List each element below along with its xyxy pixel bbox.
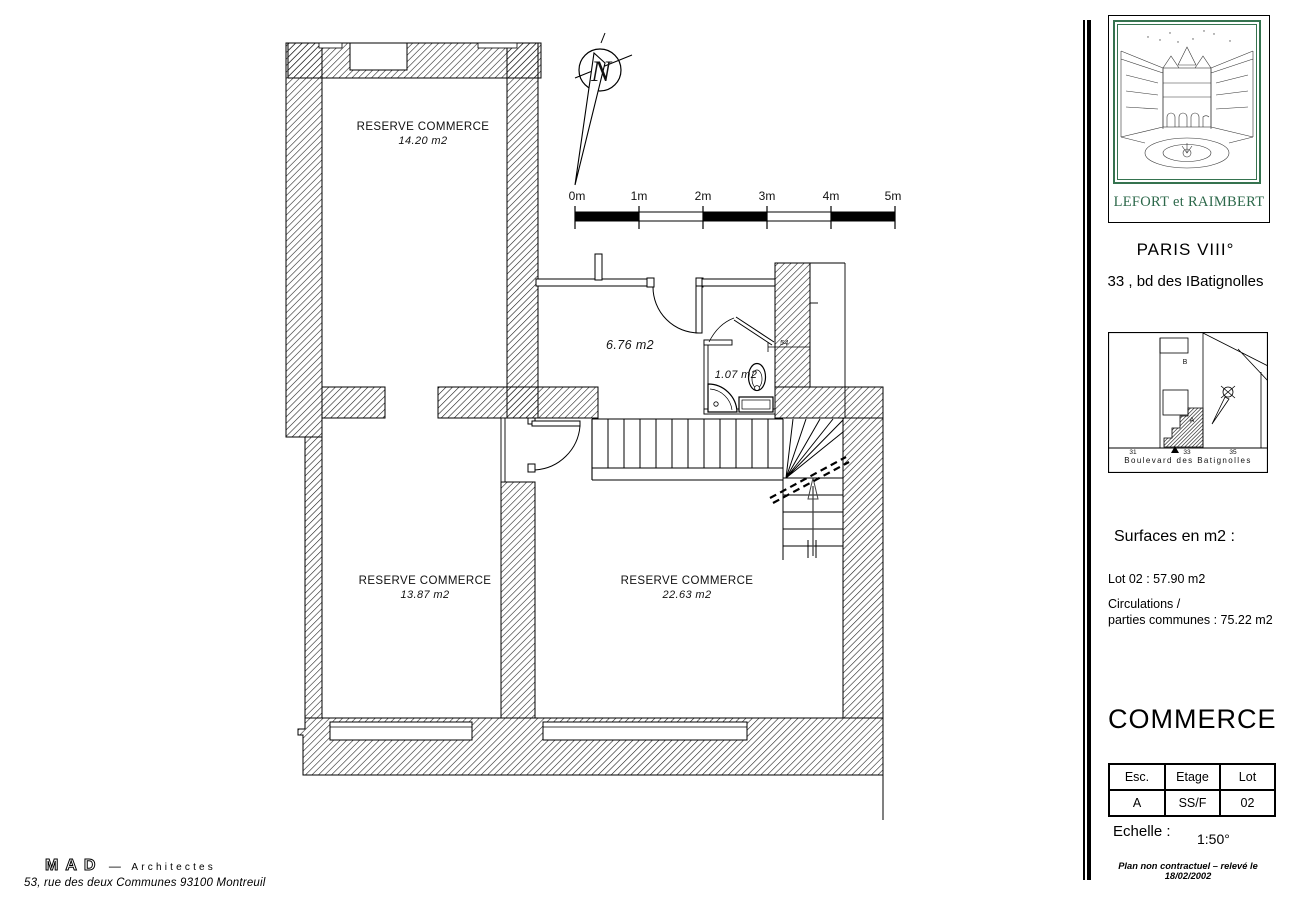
staircase [592, 419, 843, 560]
scale-value: 1:50° [1197, 831, 1230, 847]
logo-box: LEFORT et RAIMBERT [1108, 15, 1270, 223]
floor-plan-drawing: 54 N 0m 1m 2m 3m 4m 5m RESERVE COMMERCE [0, 0, 1080, 897]
svg-text:A: A [1190, 417, 1195, 424]
room1-name: RESERVE COMMERCE [357, 121, 490, 133]
dim-label: 54 [780, 338, 788, 347]
corner-sink-icon [708, 384, 737, 412]
surfaces-title: Surfaces en m2 : [1114, 528, 1235, 546]
wc-area: 1.07 m2 [715, 369, 758, 381]
room2-area: 13.87 m2 [400, 589, 449, 601]
svg-text:1m: 1m [631, 189, 648, 203]
north-arrow-icon: N [575, 33, 632, 185]
lot-table: Esc. Etage Lot A SS/F 02 [1108, 763, 1276, 817]
program-title: COMMERCE [1108, 704, 1268, 735]
firm-separator: — [109, 859, 121, 873]
hall-area: 6.76 m2 [606, 338, 654, 352]
svg-text:33: 33 [1183, 449, 1191, 456]
scale-label: Echelle : [1113, 823, 1171, 840]
surfaces-circulations-1: Circulations / [1108, 597, 1180, 611]
firm-logo-text: MAD [45, 857, 102, 874]
door-swing-hall [653, 287, 699, 333]
room3-name: RESERVE COMMERCE [621, 575, 754, 587]
svg-text:3m: 3m [759, 189, 776, 203]
surfaces-lot: Lot 02 : 57.90 m2 [1108, 572, 1205, 586]
firm-type: Architectes [131, 862, 216, 873]
svg-text:31: 31 [1129, 449, 1137, 456]
firm-signature: MAD — Architectes [45, 857, 216, 875]
room2-name: RESERVE COMMERCE [359, 575, 492, 587]
table-header-lot: Lot [1220, 764, 1275, 790]
city-title: PARIS VIII° [1080, 240, 1291, 260]
door-swing-room2 [535, 426, 580, 470]
table-cell-esc: A [1109, 790, 1165, 816]
room1-area: 14.20 m2 [398, 135, 447, 147]
logo-caption: LEFORT et RAIMBERT [1109, 194, 1269, 211]
svg-text:B: B [1183, 359, 1188, 366]
partition-walls [536, 254, 775, 333]
sheet-border-thick [1087, 20, 1091, 880]
surfaces-circulations-2: parties communes : 75.22 m2 [1108, 613, 1273, 627]
disclaimer-note: Plan non contractuel – relevé le 18/02/2… [1108, 861, 1268, 881]
svg-text:4m: 4m [823, 189, 840, 203]
architect-plan-sheet: 54 N 0m 1m 2m 3m 4m 5m RESERVE COMMERCE [0, 0, 1291, 897]
svg-text:2m: 2m [695, 189, 712, 203]
wall-hatching [286, 43, 883, 775]
svg-text:5m: 5m [885, 189, 902, 203]
table-cell-etage: SS/F [1165, 790, 1220, 816]
map-street-label: Boulevard des Batignolles [1124, 456, 1252, 465]
room3-area: 22.63 m2 [661, 589, 711, 601]
table-header-esc: Esc. [1109, 764, 1165, 790]
svg-text:N: N [590, 55, 613, 88]
table-header-etage: Etage [1165, 764, 1220, 790]
sheet-border-thin [1083, 20, 1085, 880]
logo-frame-outer [1113, 20, 1261, 184]
table-cell-lot: 02 [1220, 790, 1275, 816]
logo-frame-inner [1117, 24, 1257, 180]
scale-bar: 0m 1m 2m 3m 4m 5m [569, 189, 902, 229]
svg-text:0m: 0m [569, 189, 586, 203]
location-map: 31 33 35 B A Boulevard des Batignolles [1108, 332, 1268, 473]
svg-text:35: 35 [1229, 449, 1237, 456]
courtyard-etching [1118, 25, 1256, 179]
firm-address: 53, rue des deux Communes 93100 Montreui… [24, 877, 266, 889]
door-room2 [501, 418, 580, 482]
street-address: 33 , bd des IBatignolles [1080, 273, 1291, 290]
